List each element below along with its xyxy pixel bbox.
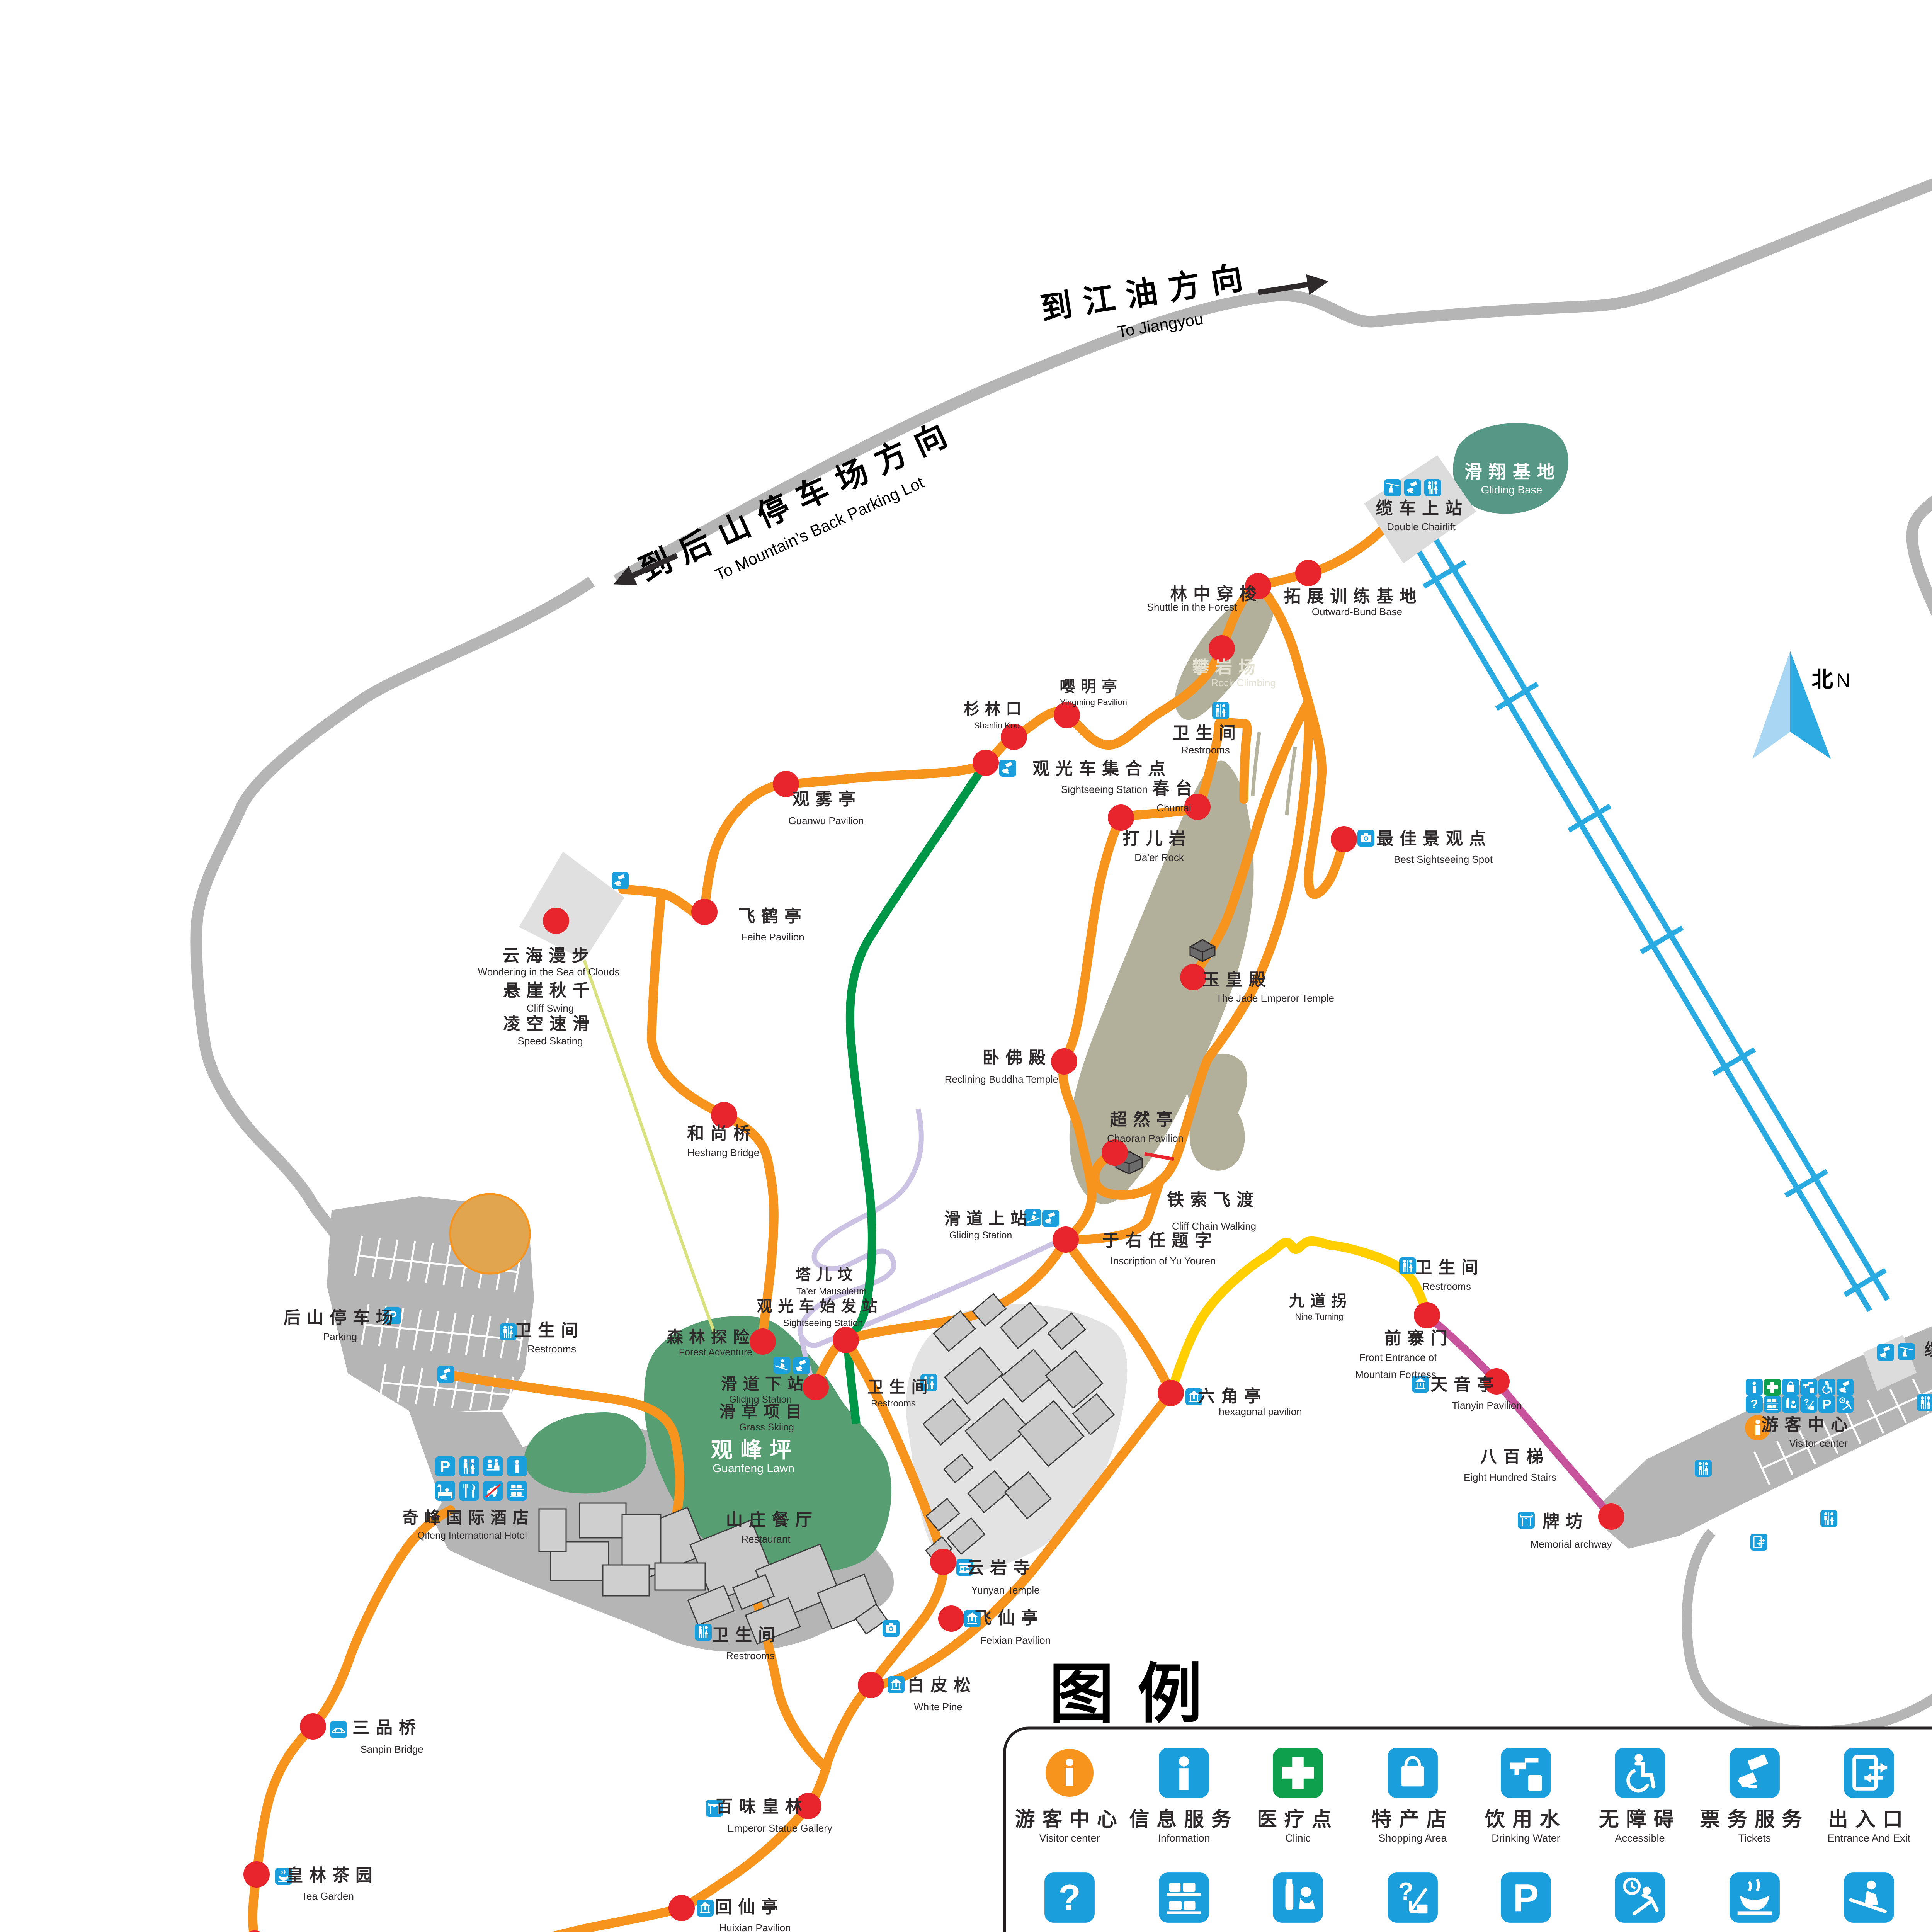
svg-text:Speed Skating: Speed Skating [517, 1035, 583, 1047]
svg-text:Huixian Pavilion: Huixian Pavilion [719, 1922, 791, 1932]
svg-text:飞鹤亭: 飞鹤亭 [738, 907, 808, 926]
svg-text:Restaurant: Restaurant [741, 1533, 791, 1545]
svg-text:Yingming Pavilion: Yingming Pavilion [1060, 697, 1127, 707]
svg-text:Guanwu Pavilion: Guanwu Pavilion [788, 815, 864, 827]
svg-text:卫生间: 卫生间 [1172, 724, 1242, 743]
svg-text:Tickets: Tickets [1738, 1832, 1771, 1844]
svg-text:观峰坪: 观峰坪 [711, 1438, 799, 1462]
svg-text:特产店: 特产店 [1372, 1808, 1454, 1831]
svg-text:皇林茶园: 皇林茶园 [286, 1866, 378, 1885]
svg-text:超然亭: 超然亭 [1110, 1110, 1179, 1129]
svg-text:Entrance And Exit: Entrance And Exit [1828, 1832, 1911, 1844]
svg-text:滑道下站: 滑道下站 [721, 1375, 809, 1393]
svg-text:Ta'er Mausoleum: Ta'er Mausoleum [796, 1286, 867, 1297]
svg-text:攀岩场: 攀岩场 [1192, 658, 1262, 677]
svg-text:悬崖秋千: 悬崖秋千 [503, 981, 595, 1000]
svg-text:票务服务: 票务服务 [1700, 1808, 1810, 1831]
svg-text:Memorial archway: Memorial archway [1531, 1538, 1612, 1550]
svg-text:Restrooms: Restrooms [1181, 744, 1230, 756]
svg-text:Front Entrance of: Front Entrance of [1359, 1352, 1437, 1363]
svg-text:林中穿梭: 林中穿梭 [1170, 585, 1262, 604]
svg-text:云岩寺: 云岩寺 [967, 1558, 1036, 1577]
svg-text:Restrooms: Restrooms [527, 1343, 576, 1355]
svg-text:Tea Garden: Tea Garden [301, 1890, 354, 1902]
svg-text:Drinking Water: Drinking Water [1492, 1832, 1560, 1844]
svg-text:嘤明亭: 嘤明亭 [1060, 678, 1122, 695]
svg-text:Shanlin Kou: Shanlin Kou [974, 721, 1020, 730]
svg-text:Mountain Fortress: Mountain Fortress [1355, 1369, 1436, 1380]
svg-text:Outward-Bund Base: Outward-Bund Base [1312, 606, 1402, 617]
svg-text:三品桥: 三品桥 [352, 1718, 422, 1737]
svg-text:天音亭: 天音亭 [1430, 1375, 1500, 1394]
svg-text:Visitor center: Visitor center [1039, 1832, 1100, 1844]
svg-text:Feihe Pavilion: Feihe Pavilion [741, 931, 804, 943]
svg-text:Chaoran Pavilion: Chaoran Pavilion [1107, 1133, 1184, 1144]
svg-text:Qifeng International Hotel: Qifeng International Hotel [417, 1530, 527, 1541]
svg-text:卫生间: 卫生间 [712, 1626, 781, 1645]
svg-text:Nine Turning: Nine Turning [1295, 1312, 1344, 1321]
svg-text:云海漫步: 云海漫步 [502, 946, 595, 965]
svg-text:Sightseeing Station: Sightseeing Station [783, 1318, 863, 1328]
svg-text:Heshang Bridge: Heshang Bridge [687, 1147, 759, 1158]
svg-text:前寨门: 前寨门 [1384, 1329, 1454, 1348]
svg-text:奇峰国际酒店: 奇峰国际酒店 [402, 1509, 535, 1527]
svg-text:卧佛殿: 卧佛殿 [982, 1048, 1052, 1067]
svg-text:Guanfeng Lawn: Guanfeng Lawn [713, 1462, 794, 1475]
svg-text:Rock Climbing: Rock Climbing [1211, 677, 1276, 689]
svg-text:Information: Information [1158, 1832, 1210, 1844]
svg-text:Best Sightseeing Spot: Best Sightseeing Spot [1394, 854, 1493, 865]
svg-text:铁索飞渡: 铁索飞渡 [1167, 1190, 1259, 1209]
svg-text:信息服务: 信息服务 [1129, 1808, 1239, 1831]
svg-text:Restrooms: Restrooms [871, 1398, 916, 1409]
svg-text:医疗点: 医疗点 [1257, 1808, 1339, 1831]
svg-text:Reclining Buddha Temple: Reclining Buddha Temple [945, 1073, 1058, 1085]
svg-text:Accessible: Accessible [1615, 1832, 1665, 1844]
svg-text:Shuttle in the Forest: Shuttle in the Forest [1147, 601, 1237, 613]
svg-text:Grass Skiing: Grass Skiing [739, 1422, 794, 1433]
svg-text:Gliding Base: Gliding Base [1481, 484, 1543, 496]
svg-text:Tianyin Pavilion: Tianyin Pavilion [1452, 1400, 1522, 1411]
svg-text:Cliff Swing: Cliff Swing [527, 1002, 574, 1014]
svg-text:森林探险: 森林探险 [667, 1328, 755, 1346]
svg-text:无障碍: 无障碍 [1599, 1808, 1681, 1831]
svg-text:Forest Adventure: Forest Adventure [679, 1347, 752, 1358]
svg-text:后山停车场: 后山停车场 [283, 1308, 399, 1327]
svg-text:Inscription of Yu Youren: Inscription of Yu Youren [1111, 1255, 1216, 1267]
svg-text:Emperor Statue Gallery: Emperor Statue Gallery [727, 1822, 832, 1834]
svg-text:Chuntai: Chuntai [1156, 802, 1191, 814]
svg-text:滑翔基地: 滑翔基地 [1464, 462, 1561, 482]
svg-text:Gliding Station: Gliding Station [949, 1230, 1012, 1241]
svg-text:卫生间: 卫生间 [1415, 1258, 1485, 1277]
svg-text:九道拐: 九道拐 [1289, 1293, 1352, 1310]
svg-text:游客中心: 游客中心 [1015, 1808, 1124, 1831]
svg-text:hexagonal pavilion: hexagonal pavilion [1219, 1406, 1302, 1417]
svg-text:飞仙亭: 飞仙亭 [975, 1609, 1044, 1628]
svg-text:凌空速滑: 凌空速滑 [503, 1014, 595, 1033]
svg-text:Sanpin Bridge: Sanpin Bridge [360, 1743, 423, 1755]
svg-text:饮用水: 饮用水 [1485, 1808, 1567, 1831]
svg-text:White Pine: White Pine [914, 1701, 963, 1713]
svg-text:观光车集合点: 观光车集合点 [1032, 759, 1171, 778]
svg-text:Visitor center: Visitor center [1789, 1437, 1848, 1449]
svg-text:玉皇殿: 玉皇殿 [1202, 970, 1272, 989]
svg-text:八百梯: 八百梯 [1480, 1447, 1549, 1466]
svg-text:Eight Hundred Stairs: Eight Hundred Stairs [1464, 1471, 1556, 1483]
svg-text:观雾亭: 观雾亭 [792, 790, 862, 809]
svg-text:N: N [1836, 670, 1850, 691]
svg-text:和尚桥: 和尚桥 [687, 1124, 757, 1143]
svg-text:塔儿坟: 塔儿坟 [795, 1266, 858, 1283]
svg-text:Sightseeing Station: Sightseeing Station [1061, 784, 1148, 795]
svg-text:Wondering in the Sea of Clouds: Wondering in the Sea of Clouds [478, 966, 620, 978]
svg-text:图例: 图例 [1049, 1658, 1226, 1730]
svg-text:观光车始发站: 观光车始发站 [757, 1298, 883, 1315]
svg-text:Da'er Rock: Da'er Rock [1134, 852, 1184, 863]
svg-text:The Jade Emperor Temple: The Jade Emperor Temple [1216, 992, 1334, 1004]
svg-text:Restrooms: Restrooms [1422, 1281, 1471, 1292]
svg-text:拓展训练基地: 拓展训练基地 [1284, 587, 1422, 606]
svg-text:滑草项目: 滑草项目 [719, 1403, 808, 1421]
svg-text:六角亭: 六角亭 [1198, 1387, 1267, 1406]
svg-text:出入口: 出入口 [1828, 1808, 1910, 1831]
svg-text:百味皇林: 百味皇林 [716, 1797, 808, 1816]
svg-text:打儿岩: 打儿岩 [1122, 829, 1192, 848]
svg-text:春台: 春台 [1152, 779, 1199, 798]
svg-text:Clinic: Clinic [1285, 1832, 1311, 1844]
svg-text:缆车下站: 缆车下站 [1924, 1340, 1932, 1359]
svg-text:Yunyan Temple: Yunyan Temple [971, 1584, 1039, 1596]
svg-text:牌坊: 牌坊 [1543, 1512, 1589, 1531]
svg-text:最佳景观点: 最佳景观点 [1376, 829, 1492, 848]
svg-text:山庄餐厅: 山庄餐厅 [726, 1510, 818, 1529]
svg-text:于右任题字: 于右任题字 [1102, 1231, 1218, 1250]
svg-text:Feixian Pavilion: Feixian Pavilion [980, 1634, 1051, 1646]
svg-text:Shopping Area: Shopping Area [1378, 1832, 1447, 1844]
svg-text:Double Chairlift: Double Chairlift [1387, 521, 1456, 532]
svg-text:滑道上站: 滑道上站 [944, 1209, 1032, 1228]
svg-text:卫生间: 卫生间 [867, 1378, 933, 1396]
svg-text:游客中心: 游客中心 [1761, 1415, 1854, 1434]
svg-text:杉林口: 杉林口 [964, 701, 1027, 718]
svg-text:回仙亭: 回仙亭 [715, 1898, 784, 1917]
svg-text:卫生间: 卫生间 [515, 1321, 584, 1340]
svg-text:Cliff Chain Walking: Cliff Chain Walking [1172, 1220, 1256, 1232]
svg-text:白皮松: 白皮松 [907, 1676, 977, 1695]
svg-text:Parking: Parking [323, 1331, 357, 1342]
svg-text:Restrooms: Restrooms [726, 1650, 775, 1662]
svg-text:缆车上站: 缆车上站 [1376, 499, 1468, 518]
